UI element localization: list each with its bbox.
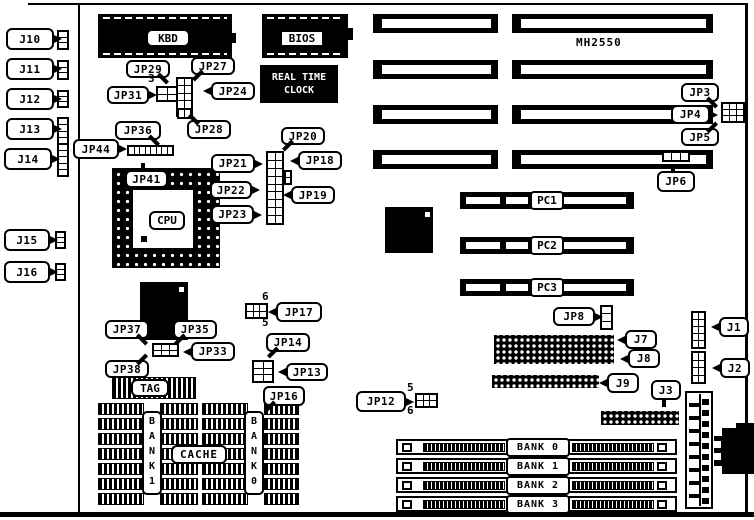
keyboard-din-connector <box>722 428 754 474</box>
cache-chip <box>98 433 144 445</box>
callout-jp6: JP6 <box>657 171 695 192</box>
pin-cell <box>168 88 177 94</box>
pin-cell <box>276 153 283 160</box>
board-model: MH2550 <box>576 36 646 52</box>
cache-chip <box>202 478 248 490</box>
pin-cell <box>59 43 67 48</box>
cache-chip <box>202 463 248 475</box>
pin-cell <box>602 307 611 313</box>
callout-pointer <box>671 164 675 173</box>
pc-slot-stripe <box>506 197 528 204</box>
cache-chip <box>98 478 144 490</box>
pin-cell <box>57 233 64 237</box>
simm-slot-bank3: BANK 3 <box>396 496 677 512</box>
board-edge-top <box>28 3 747 5</box>
pin-cell <box>699 327 704 333</box>
pin-cell <box>699 341 704 347</box>
pin-cell <box>737 110 743 115</box>
isa-slot-stripe <box>382 155 491 164</box>
callout-jp21: JP21 <box>211 154 255 173</box>
callout-pointer <box>593 312 603 322</box>
simm-slot-bank2: BANK 2 <box>396 477 677 493</box>
pin-cell <box>737 116 743 121</box>
callout-jp12: JP12 <box>356 391 406 412</box>
pin-cell <box>59 151 67 156</box>
pin-cell <box>59 164 67 169</box>
callout-jp23: JP23 <box>211 205 254 224</box>
callout-pointer <box>141 163 145 172</box>
pin-cell <box>417 401 423 406</box>
callout-pointer <box>52 94 62 104</box>
kbd-label: KBD <box>146 29 190 47</box>
pin-cell <box>59 157 67 162</box>
simm-contacts <box>423 481 505 490</box>
cpu-label: CPU <box>149 211 185 230</box>
cache-chip <box>160 403 198 415</box>
pin-cell <box>158 88 167 94</box>
simm-slot-bank0: BANK 0 <box>396 439 677 455</box>
pin-cell <box>268 153 275 160</box>
pin-cell <box>699 361 704 368</box>
jp31-block <box>156 86 178 102</box>
pin-cell <box>268 177 275 184</box>
chip-notch <box>347 28 353 40</box>
jp3-4-5-block <box>721 102 745 123</box>
callout-pointer <box>711 322 721 332</box>
j3-header <box>601 411 679 425</box>
pin-cell <box>730 116 736 121</box>
chip-stripe <box>103 17 227 19</box>
pin-cell <box>730 110 736 115</box>
pin-cell <box>723 104 729 109</box>
jp44-strip <box>127 145 174 156</box>
pin-cell <box>699 320 704 326</box>
pin-cell <box>693 376 698 383</box>
pin-cell <box>264 369 273 375</box>
cache-chip <box>264 418 299 430</box>
cache-chip <box>202 433 248 445</box>
pin-cell <box>424 401 430 406</box>
pin-number-6: 6 <box>407 404 417 417</box>
callout-pointer <box>662 398 666 407</box>
pin-cell <box>276 216 283 223</box>
pc-slot-stripe <box>466 197 500 204</box>
keyboard-din-connector <box>736 423 754 429</box>
isa-slot-4 <box>512 60 713 79</box>
callout-pointer <box>708 110 718 120</box>
pin-cell <box>699 353 704 360</box>
callout-jp44: JP44 <box>73 139 119 159</box>
pin-cell <box>737 104 743 109</box>
pin-cell <box>162 351 169 356</box>
callout-pointer <box>52 124 62 134</box>
callout-j8: J8 <box>628 349 660 368</box>
pin-number-3: 3 <box>148 72 158 85</box>
pin-cell <box>146 147 151 154</box>
pin-cell <box>693 320 698 326</box>
jp6-connector <box>662 151 690 162</box>
pin-cell <box>693 341 698 347</box>
pin-cell <box>693 313 698 319</box>
pin-cell <box>59 170 67 175</box>
pin-cell <box>699 376 704 383</box>
pin-cell <box>602 322 611 328</box>
pin-cell <box>430 401 436 406</box>
isa-slot-2 <box>512 14 713 33</box>
pin-cell <box>57 275 64 279</box>
chip-dot <box>179 287 184 292</box>
simm-clip <box>402 481 412 490</box>
cache-chip <box>98 418 144 430</box>
isa-slot-5 <box>373 105 498 124</box>
pc-slot-stripe <box>564 242 626 249</box>
simm-contacts <box>423 443 505 452</box>
cache-chip <box>264 478 299 490</box>
isa-slot-stripe <box>382 110 491 119</box>
pin-cell <box>170 345 177 350</box>
isa-slot-stripe <box>382 19 491 28</box>
callout-j13: J13 <box>6 118 54 140</box>
pin-number-5: 5 <box>262 316 272 329</box>
pin-cell <box>135 147 140 154</box>
callout-pointer <box>50 154 60 164</box>
pin-cell <box>151 147 156 154</box>
pin-cell <box>129 147 134 154</box>
callout-jp37: JP37 <box>105 320 149 339</box>
jp13-14-block <box>252 360 274 383</box>
callout-jp28: JP28 <box>187 120 231 139</box>
pin-cell <box>672 153 679 160</box>
board-edge-left <box>78 3 80 514</box>
callout-jp19: JP19 <box>291 186 335 204</box>
pc-slot-pc3: PC3 <box>460 279 634 296</box>
power-connector-pins <box>689 394 701 506</box>
isa-slot-3 <box>373 60 498 79</box>
isa-slot-7 <box>373 150 498 169</box>
pin-cell <box>424 395 430 400</box>
pin-cell <box>276 169 283 176</box>
motherboard-diagram: KBD BIOS REAL TIME CLOCK MH2550 CPU TAG … <box>0 0 754 520</box>
cache-chip <box>98 403 144 415</box>
simm-contacts <box>572 500 654 509</box>
isa-slot-stripe <box>382 65 491 74</box>
pc-slot-label: PC3 <box>530 278 564 297</box>
pin-cell <box>247 305 253 311</box>
jp19-nub <box>284 170 292 185</box>
simm-clip <box>402 462 412 471</box>
pin-cell <box>57 265 64 269</box>
callout-jp41: JP41 <box>125 170 168 188</box>
callout-pointer <box>712 363 722 373</box>
rtc-chip: REAL TIME CLOCK <box>260 65 338 103</box>
pin-number-5: 5 <box>407 381 417 394</box>
callout-j15: J15 <box>4 229 50 251</box>
callout-pointer <box>267 346 279 358</box>
cache-chip <box>202 493 248 505</box>
pin-cell <box>264 362 273 368</box>
pin-cell <box>723 116 729 121</box>
callout-pointer <box>188 113 200 125</box>
pin-cell <box>693 327 698 333</box>
callout-jp14: JP14 <box>266 333 310 352</box>
pin-cell <box>254 362 263 368</box>
pin-cell <box>260 305 266 311</box>
callout-pointer <box>48 267 58 277</box>
cache-chip <box>264 448 299 460</box>
chip-stripe <box>267 53 343 55</box>
pin-cell <box>154 351 161 356</box>
pin-cell <box>254 369 263 375</box>
simm-clip <box>402 443 412 452</box>
callout-pointer <box>290 156 300 166</box>
pin-cell <box>268 185 275 192</box>
callout-jp38: JP38 <box>105 360 149 378</box>
pin-cell <box>185 86 191 92</box>
rtc-label-line2: CLOCK <box>260 84 338 97</box>
cache-chip <box>264 463 299 475</box>
simm-clip <box>657 443 667 452</box>
callout-jp3: JP3 <box>681 83 719 102</box>
simm-bank-label: BANK 1 <box>506 457 570 476</box>
pin-cell <box>158 95 167 101</box>
pin-cell <box>59 73 67 78</box>
pc-slot-pc2: PC2 <box>460 237 634 254</box>
callout-jp22: JP22 <box>210 181 252 199</box>
pin-cell <box>276 208 283 215</box>
pin-cell <box>178 86 184 92</box>
pin-cell <box>162 147 167 154</box>
simm-contacts <box>572 443 654 452</box>
callout-pointer <box>136 353 148 365</box>
power-connector-pins <box>702 394 709 506</box>
jp33-block <box>152 343 179 357</box>
pin-cell <box>730 104 736 109</box>
pin-cell <box>268 208 275 215</box>
callout-jp8: JP8 <box>553 307 595 326</box>
callout-j3: J3 <box>651 380 681 400</box>
pin-cell <box>157 147 162 154</box>
pc-slot-stripe <box>564 284 626 291</box>
callout-j2: J2 <box>720 358 750 378</box>
pin-cell <box>268 169 275 176</box>
pc-slot-label: PC2 <box>530 236 564 255</box>
din-notch <box>714 441 721 448</box>
callout-jp33: JP33 <box>191 342 235 361</box>
pin-cell <box>168 147 173 154</box>
pin-cell <box>162 345 169 350</box>
pin-cell <box>693 334 698 340</box>
pin-cell <box>681 153 688 160</box>
simm-contacts <box>572 462 654 471</box>
pin-cell <box>264 375 273 381</box>
pin-cell <box>268 161 275 168</box>
pin-cell <box>276 177 283 184</box>
pin-cell <box>247 312 253 318</box>
callout-pointer <box>157 72 169 84</box>
pin-cell <box>268 216 275 223</box>
pin-cell <box>693 353 698 360</box>
pin-cell <box>154 345 161 350</box>
pin-cell <box>699 313 704 319</box>
simm-clip <box>402 500 412 509</box>
simm-clip <box>657 462 667 471</box>
rtc-label-line1: REAL TIME <box>260 71 338 84</box>
pc-slot-pc1: PC1 <box>460 192 634 209</box>
pin-cell <box>168 95 177 101</box>
callout-pointer <box>252 210 262 220</box>
callout-jp13: JP13 <box>286 363 328 381</box>
pc-slot-stripe <box>506 242 528 249</box>
tag-label: TAG <box>131 379 169 397</box>
cache-bank1-label: BANK1 <box>142 411 162 495</box>
j2-header <box>691 351 706 384</box>
pin-cell <box>699 334 704 340</box>
simm-bank-label: BANK 3 <box>506 495 570 514</box>
pin-cell <box>276 161 283 168</box>
callout-j7: J7 <box>625 330 657 349</box>
j9-header <box>492 375 599 388</box>
simm-contacts <box>572 481 654 490</box>
callout-jp16: JP16 <box>263 386 305 406</box>
j1-header <box>691 311 706 349</box>
pc-slot-stripe <box>466 242 500 249</box>
pin-cell <box>254 312 260 318</box>
callout-pointer <box>183 347 193 357</box>
cache-bank0-label: BANK0 <box>244 411 264 495</box>
bios-label: BIOS <box>280 30 324 47</box>
chip-dot <box>425 212 430 217</box>
callout-pointer <box>52 64 62 74</box>
cache-chip <box>264 433 299 445</box>
pin-cell <box>286 178 290 183</box>
cache-chip <box>98 448 144 460</box>
jp20-23-strip <box>266 151 284 225</box>
cache-chip <box>160 493 198 505</box>
board-edge-bottom <box>0 512 754 517</box>
simm-contacts <box>423 500 505 509</box>
callout-pointer <box>192 69 204 81</box>
pin-cell <box>723 110 729 115</box>
j7-j8-header <box>494 335 614 364</box>
callout-j9: J9 <box>607 373 639 393</box>
cache-chip <box>202 418 248 430</box>
simm-bank-label: BANK 0 <box>506 438 570 457</box>
simm-clip <box>657 481 667 490</box>
pin-cell <box>276 200 283 207</box>
callout-pointer <box>282 139 294 151</box>
pin-cell <box>276 192 283 199</box>
pin-cell <box>693 361 698 368</box>
cache-chip <box>98 463 144 475</box>
callout-jp20: JP20 <box>281 127 325 145</box>
callout-jp4: JP4 <box>671 105 710 124</box>
pc-slot-label: PC1 <box>530 191 564 210</box>
cache-chip <box>160 418 198 430</box>
pin-cell <box>179 110 184 117</box>
callout-j10: J10 <box>6 28 54 50</box>
callout-jp35: JP35 <box>173 320 217 339</box>
pin-cell <box>57 270 64 274</box>
pin-cell <box>276 185 283 192</box>
isa-slot-stripe <box>521 19 706 28</box>
pin-cell <box>693 368 698 375</box>
isa-slot-1 <box>373 14 498 33</box>
pin-cell <box>178 94 184 100</box>
pin-cell <box>254 375 263 381</box>
simm-clip <box>657 500 667 509</box>
callout-j1: J1 <box>719 317 749 337</box>
pin-cell <box>430 395 436 400</box>
callout-pointer <box>48 235 58 245</box>
pin-cell <box>185 94 191 100</box>
callout-pointer <box>117 144 127 154</box>
callout-jp27: JP27 <box>191 57 235 75</box>
pin-cell <box>140 147 145 154</box>
callout-pointer <box>253 159 263 169</box>
callout-pointer <box>52 34 62 44</box>
pc-slot-stripe <box>506 284 528 291</box>
simm-contacts <box>423 462 505 471</box>
jp12-block <box>415 393 438 408</box>
callout-pointer <box>283 190 293 200</box>
pc-slot-stripe <box>564 197 626 204</box>
pin-cell <box>59 145 67 150</box>
callout-pointer <box>147 90 157 100</box>
cache-chip <box>160 478 198 490</box>
pin-cell <box>664 153 671 160</box>
cache-chip <box>160 463 198 475</box>
pin-cell <box>286 172 290 177</box>
cache-chip <box>264 493 299 505</box>
pin-cell <box>170 351 177 356</box>
callout-jp31: JP31 <box>107 86 149 104</box>
simm-bank-label: BANK 2 <box>506 476 570 495</box>
callout-j12: J12 <box>6 88 54 110</box>
din-notch <box>714 453 721 460</box>
cache-chip <box>202 403 248 415</box>
callout-pointer <box>203 86 213 96</box>
chip-stripe <box>103 53 227 55</box>
pin-cell <box>699 368 704 375</box>
callout-pointer <box>250 185 260 195</box>
callout-jp5: JP5 <box>681 128 719 146</box>
pc-slot-stripe <box>466 284 500 291</box>
callout-jp24: JP24 <box>211 82 255 100</box>
cache-label: CACHE <box>171 445 227 464</box>
pin-number-6: 6 <box>262 290 272 303</box>
pin-cell <box>185 79 191 85</box>
callout-jp17: JP17 <box>276 302 322 322</box>
callout-jp36: JP36 <box>115 121 161 140</box>
callout-j14: J14 <box>4 148 52 170</box>
isa-slot-stripe <box>521 65 706 74</box>
callout-pointer <box>620 354 630 364</box>
chip-stripe <box>267 17 343 19</box>
callout-pointer <box>599 378 609 388</box>
callout-pointer <box>278 367 288 377</box>
pin-cell <box>602 314 611 320</box>
pin-cell <box>178 79 184 85</box>
pin-cell <box>57 238 64 242</box>
pin-cell <box>268 192 275 199</box>
callout-pointer <box>617 335 627 345</box>
cache-chip <box>160 433 198 445</box>
pin-cell <box>185 101 191 107</box>
callout-j16: J16 <box>4 261 50 283</box>
callout-j11: J11 <box>6 58 54 80</box>
pin-cell <box>268 200 275 207</box>
pin-cell <box>178 101 184 107</box>
